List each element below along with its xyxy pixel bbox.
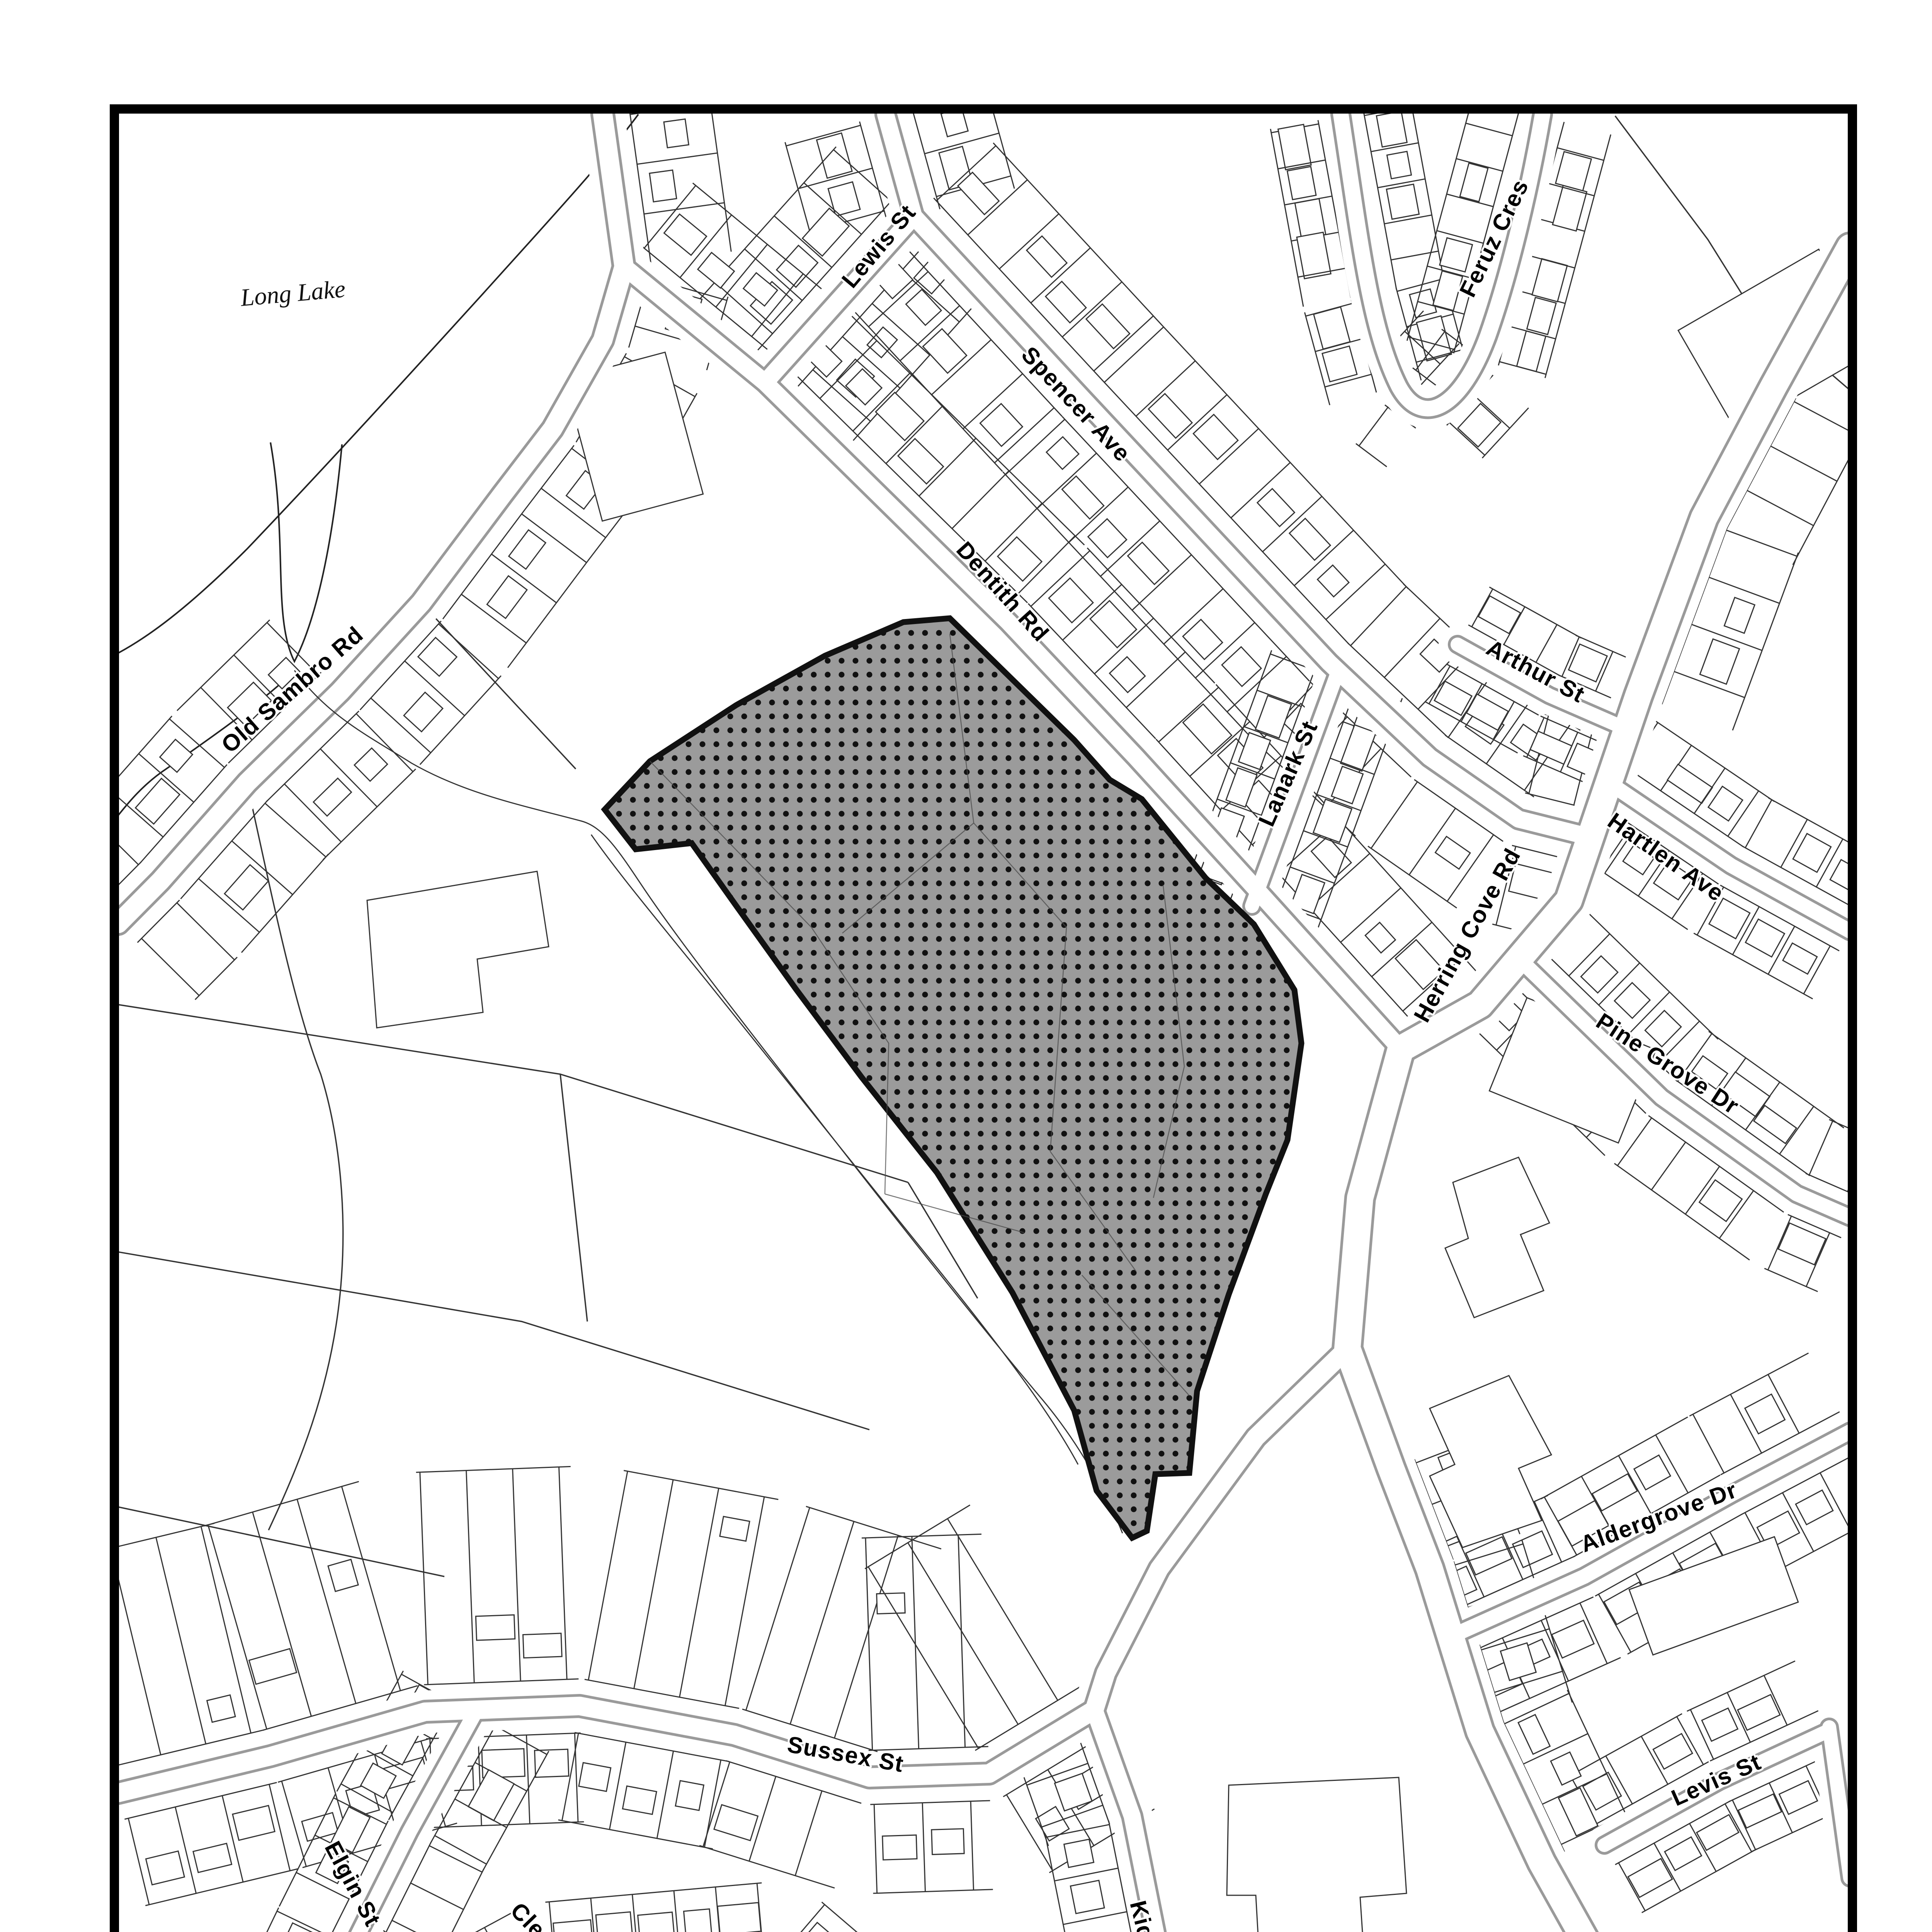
north-letter: N bbox=[202, 1929, 221, 1932]
building bbox=[476, 1615, 515, 1640]
map-canvas: Long Lake Lewis St Spencer Ave Feruz Cre… bbox=[0, 0, 1932, 1932]
building bbox=[718, 1903, 761, 1932]
building bbox=[675, 1781, 704, 1810]
building bbox=[207, 1695, 235, 1722]
building bbox=[622, 1786, 656, 1814]
building bbox=[664, 119, 689, 148]
building bbox=[720, 1517, 750, 1541]
map-page: Long Lake Lewis St Spencer Ave Feruz Cre… bbox=[0, 0, 1932, 1932]
building bbox=[535, 1749, 569, 1777]
building bbox=[523, 1633, 562, 1658]
building bbox=[932, 1829, 964, 1855]
building bbox=[1387, 151, 1411, 179]
building bbox=[1064, 1839, 1094, 1867]
building bbox=[638, 1912, 674, 1932]
building bbox=[650, 170, 677, 202]
building bbox=[1070, 1880, 1104, 1913]
building bbox=[1376, 111, 1407, 147]
building bbox=[883, 1835, 917, 1860]
building bbox=[1386, 184, 1419, 219]
building bbox=[579, 1763, 611, 1791]
building bbox=[596, 1912, 633, 1932]
building bbox=[684, 1909, 712, 1932]
building bbox=[1287, 167, 1316, 200]
